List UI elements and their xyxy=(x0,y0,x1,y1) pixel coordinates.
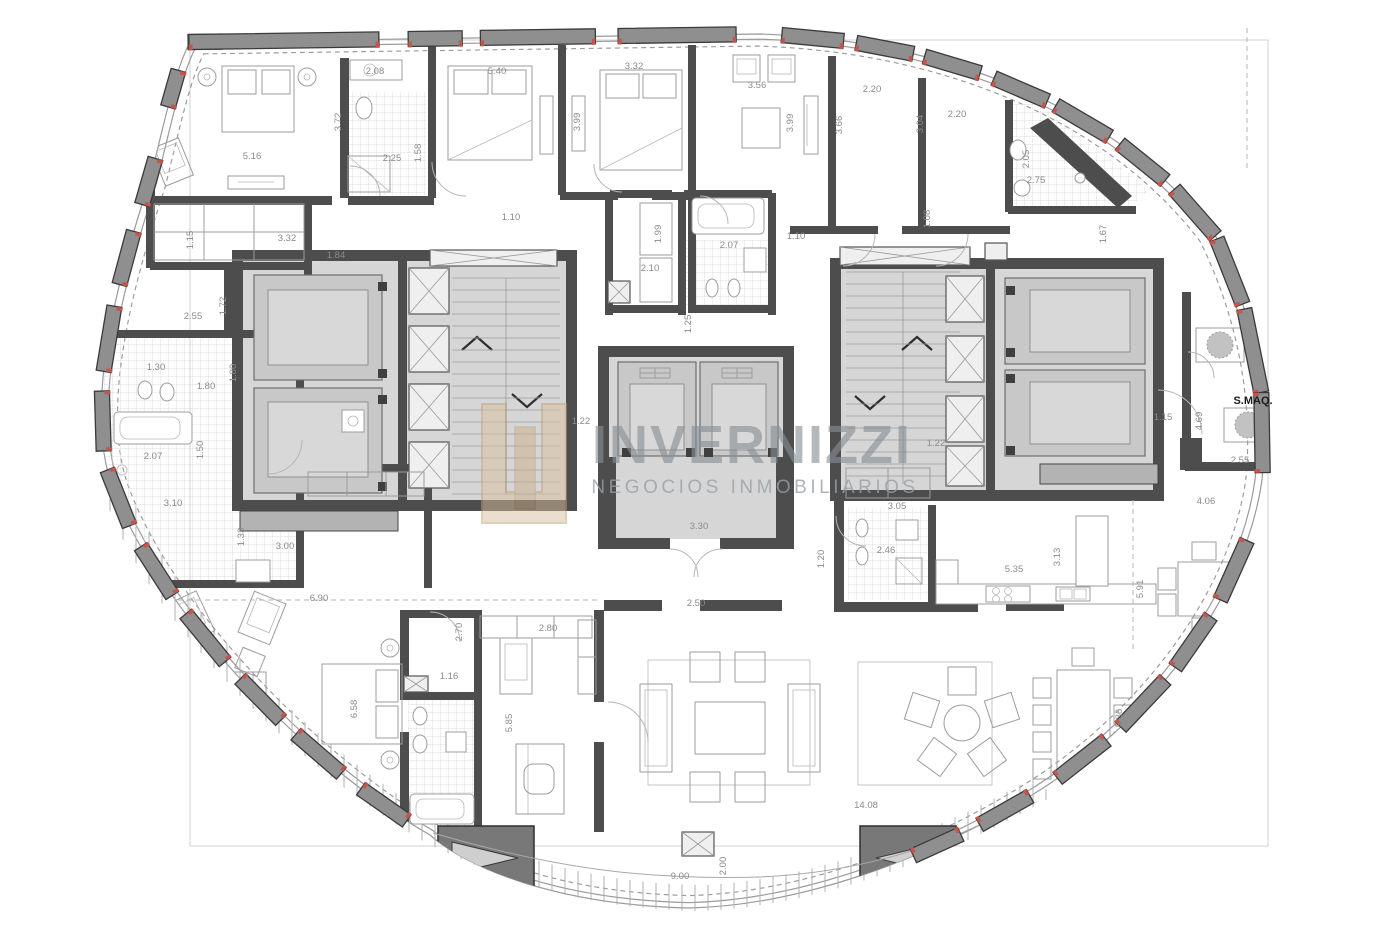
dimension-label: 1.30 xyxy=(147,362,166,373)
facade-pier xyxy=(189,32,379,51)
facade-pier xyxy=(922,49,982,81)
dimension-label: 2.55 xyxy=(1231,455,1250,466)
watermark-subtitle: NEGOCIOS INMOBILIARIOS xyxy=(591,477,918,498)
dimension-label: 2.20 xyxy=(863,84,882,95)
floor-plan-drawing: 2.085.403.323.562.202.203.721.582.255.16… xyxy=(0,0,1395,950)
bedroom-2-furniture xyxy=(448,66,553,160)
dimension-label: 3.00 xyxy=(276,541,295,552)
dimension-label: 2.20 xyxy=(948,109,967,120)
dimension-label: 4.06 xyxy=(1197,496,1216,507)
dimension-label: 1.10 xyxy=(502,212,521,223)
dimension-label: 2.80 xyxy=(539,623,558,634)
dimension-label: 3.32 xyxy=(278,233,297,244)
facade-pier xyxy=(480,29,595,47)
machine-room-label: S.MAQ. xyxy=(1233,395,1272,407)
dimension-label: 5.85 xyxy=(504,714,515,733)
dimension-label: 1.16 xyxy=(440,671,459,682)
left-core-top-duct xyxy=(430,250,557,266)
facade-pier xyxy=(781,28,844,50)
dimension-label: 5.86 xyxy=(1114,709,1125,728)
facade-pier xyxy=(1236,308,1269,394)
dimension-label: 2.55 xyxy=(184,311,203,322)
dimension-label: 3.99 xyxy=(572,113,583,132)
dimension-label: 1.15 xyxy=(1154,412,1173,423)
dimension-label: 3.13 xyxy=(1052,548,1063,567)
facade-pier xyxy=(408,31,462,48)
bedroom-3-furniture xyxy=(572,70,682,170)
dimension-label: 3.30 xyxy=(690,521,709,532)
dimension-label: 2.70 xyxy=(454,623,465,642)
dimension-label: 1.33 xyxy=(236,528,247,547)
dimension-label: 14.08 xyxy=(854,800,878,811)
dimension-label: 2.07 xyxy=(144,451,163,462)
dimension-label: 1.50 xyxy=(195,441,206,460)
dimension-label: 1.80 xyxy=(197,381,216,392)
dimension-label: 4.69 xyxy=(1194,412,1205,431)
dimension-label: 1.99 xyxy=(653,225,664,244)
dimension-label: 3.56 xyxy=(748,80,767,91)
dimension-label: 5.35 xyxy=(1005,564,1024,575)
dimension-label: 1.15 xyxy=(185,231,196,250)
dimension-label: 1.10 xyxy=(787,231,806,242)
dimension-label: 2.46 xyxy=(877,545,896,556)
left-core-elevators xyxy=(240,275,398,531)
dimension-label: 1.20 xyxy=(816,550,827,569)
facade-pier xyxy=(1168,612,1217,672)
dimension-label: 3.04 xyxy=(915,115,926,134)
dimension-label: 2.10 xyxy=(641,263,660,274)
dimension-label: 2.05 xyxy=(1021,150,1032,169)
facade-pier xyxy=(855,35,915,62)
dimension-label: 6.58 xyxy=(349,700,360,719)
right-core-elevators xyxy=(1005,278,1158,484)
dimension-label: 1.58 xyxy=(413,144,424,163)
dimension-label: 3.66 xyxy=(834,116,845,135)
dimension-label: 2.07 xyxy=(720,240,739,251)
right-core-ducts xyxy=(946,276,984,486)
dimension-label: 1.84 xyxy=(327,250,346,261)
floor-plan-page: 2.085.403.323.562.202.203.721.582.255.16… xyxy=(0,0,1395,950)
dimension-label: 1.67 xyxy=(1098,225,1109,244)
grand-living-furniture xyxy=(640,652,1020,802)
dimension-label: 5.40 xyxy=(488,66,507,77)
dimension-label: 2.50 xyxy=(687,598,706,609)
dimension-label: 5.16 xyxy=(243,151,262,162)
watermark-title: INVERNIZZI xyxy=(592,415,912,475)
planters xyxy=(438,826,956,888)
dimension-label: 3.99 xyxy=(785,114,796,133)
dimension-label: 1.25 xyxy=(683,315,694,334)
dimension-label: 2.75 xyxy=(1027,175,1046,186)
facade-pier xyxy=(94,391,112,451)
dimension-label: 5.91 xyxy=(1135,580,1146,599)
facade-pier xyxy=(618,27,736,45)
dimension-label: 2.00 xyxy=(718,857,729,876)
kitchen-counters xyxy=(936,516,1156,604)
dimension-label: 1.22 xyxy=(572,416,591,427)
dimension-label: 3.05 xyxy=(888,501,907,512)
facade-pier xyxy=(1052,733,1111,784)
dimension-label: 3.72 xyxy=(333,113,344,132)
dimension-label: 1.80 xyxy=(228,364,239,383)
dimension-label: 1.08 xyxy=(922,210,933,229)
sitting-room-furniture xyxy=(733,55,818,154)
dimension-label: 2.08 xyxy=(366,66,385,77)
dimension-label: 3.32 xyxy=(625,61,644,72)
dimension-label: 3.10 xyxy=(164,498,183,509)
dimension-label: 6.90 xyxy=(310,593,329,604)
facade-pier xyxy=(161,68,187,109)
facade-pier xyxy=(1209,236,1250,307)
dimension-label: 1.22 xyxy=(927,438,946,449)
dimension-label: 9.00 xyxy=(671,871,690,882)
dimension-label: 2.25 xyxy=(383,153,402,164)
dimension-label: 1.72 xyxy=(218,297,229,316)
